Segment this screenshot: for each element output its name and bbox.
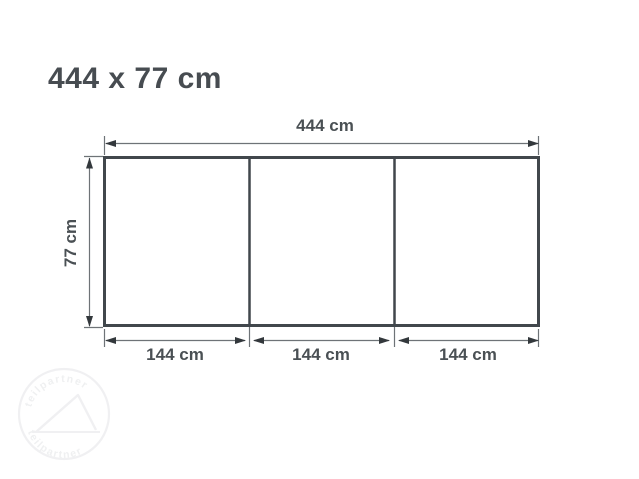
overall-width-label: 444 cm (296, 116, 354, 136)
dimension-diagram (0, 0, 639, 479)
height-dimension (84, 157, 103, 328)
section-width-label: 144 cm (292, 345, 350, 365)
overall-height-label: 77 cm (61, 219, 81, 267)
section-width-label: 144 cm (146, 345, 204, 365)
cabinet-outline (105, 158, 539, 326)
section-width-label: 144 cm (439, 345, 497, 365)
section-dimensions (105, 327, 539, 347)
width-dimension (105, 136, 539, 155)
